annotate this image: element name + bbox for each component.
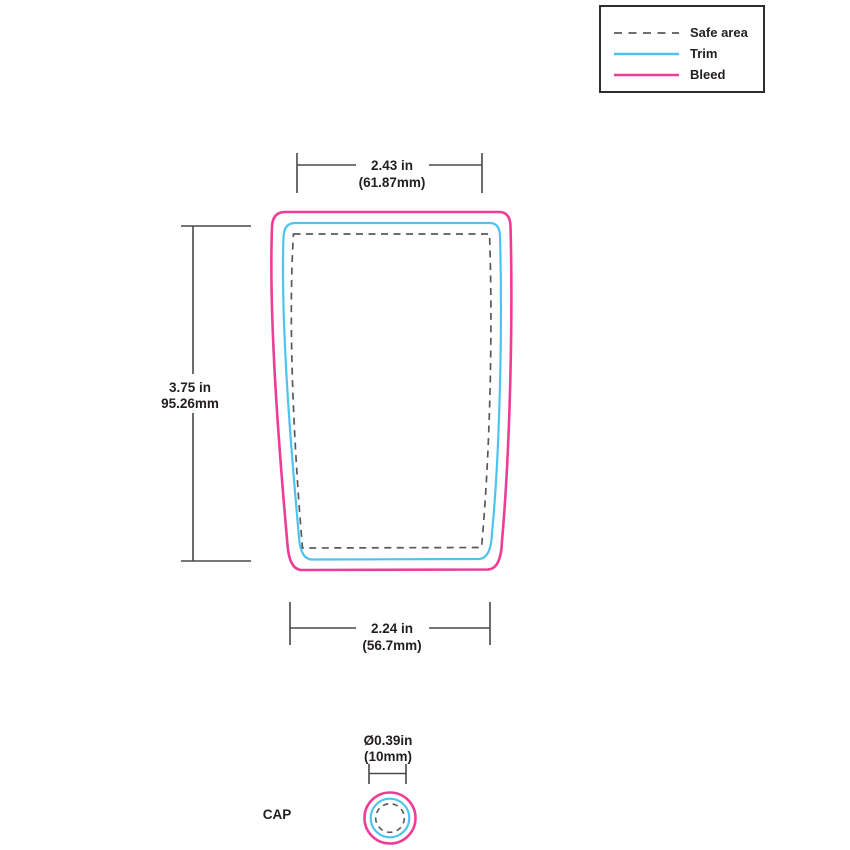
dieline-drawing: 2.43 in (61.87mm) 3.75 in 95.26mm 2.24 i… [0, 0, 850, 850]
dieline-template-canvas: 2.43 in (61.87mm) 3.75 in 95.26mm 2.24 i… [0, 0, 850, 850]
legend-item-trim: Trim [613, 43, 763, 64]
legend-label-safe-area: Safe area [690, 25, 748, 40]
bottom-width-secondary: (56.7mm) [362, 638, 421, 653]
top-width-primary: 2.43 in [371, 158, 413, 173]
top-width-secondary: (61.87mm) [359, 175, 426, 190]
cap-diameter-dimension [369, 764, 406, 784]
cap-safe-area-circle [376, 804, 405, 833]
body-bleed-outline [271, 212, 511, 570]
bleed-line-icon [613, 71, 680, 79]
cap-bleed-circle [365, 793, 416, 844]
legend-label-bleed: Bleed [690, 67, 725, 82]
cap-diameter-primary: Ø0.39in [364, 733, 413, 748]
height-secondary: 95.26mm [161, 396, 219, 411]
body-trim-outline [283, 223, 501, 560]
cap-label: CAP [263, 807, 292, 822]
legend-box: Safe area Trim Bleed [599, 5, 765, 93]
safe-area-line-icon [613, 29, 680, 37]
legend-item-safe-area: Safe area [613, 22, 763, 43]
bottom-width-primary: 2.24 in [371, 621, 413, 636]
height-primary: 3.75 in [169, 380, 211, 395]
legend-label-trim: Trim [690, 46, 717, 61]
legend-item-bleed: Bleed [613, 64, 763, 85]
body-safe-area-outline [291, 234, 491, 548]
trim-line-icon [613, 50, 680, 58]
cap-diameter-secondary: (10mm) [364, 749, 412, 764]
